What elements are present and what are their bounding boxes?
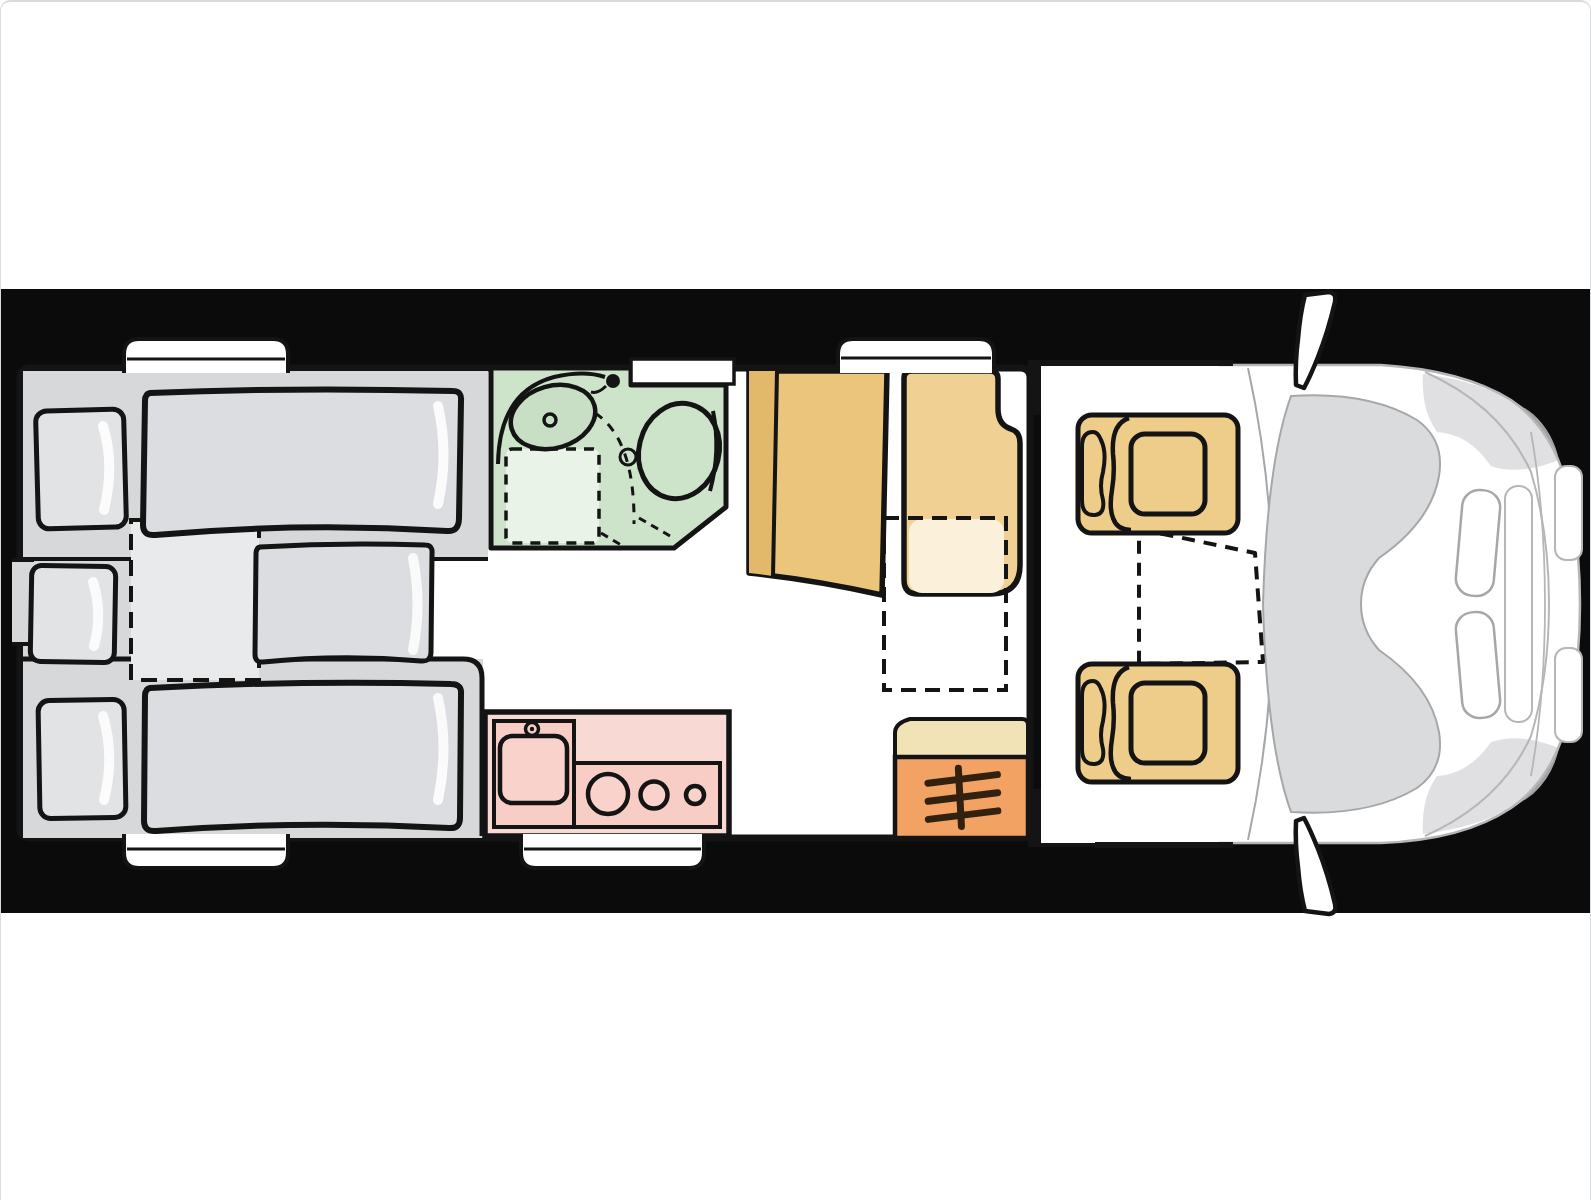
- passenger-swivel-seat: [1078, 664, 1238, 782]
- sink-basin: [500, 736, 567, 803]
- window-kitchen-bottom: [521, 834, 704, 868]
- mattress-middle: [255, 544, 432, 662]
- shower-tray-dashed: [506, 449, 599, 543]
- mattress-top: [143, 389, 461, 535]
- driver-swivel-seat: [1078, 415, 1238, 533]
- shower-head-icon: [606, 374, 620, 388]
- dinette-table-folded: [909, 519, 1004, 593]
- heater-top-panel: [895, 719, 1028, 757]
- headlight-top: [1454, 489, 1501, 598]
- seat-cushion: [1131, 434, 1205, 514]
- floorplan-canvas: [1, 2, 1591, 1200]
- window-bedroom-bottom: [124, 834, 288, 868]
- headrest: [1082, 432, 1105, 515]
- seat-cushion: [1131, 683, 1205, 763]
- bumper-cap-bottom: [1555, 648, 1582, 742]
- bathroom: [491, 359, 734, 548]
- bumper-cap-top: [1555, 466, 1582, 560]
- heater-unit: [895, 719, 1028, 838]
- floorplan-page: [0, 0, 1591, 1200]
- window-bathroom-top: [631, 359, 734, 384]
- bed-extension-dashed: [131, 520, 259, 680]
- headlight-bottom: [1454, 611, 1501, 720]
- rear-bedroom: [12, 371, 488, 838]
- faucet-icon: [526, 723, 539, 736]
- wall-joint-top: [1028, 360, 1041, 415]
- window-dinette-top: [838, 339, 994, 373]
- kitchen: [485, 712, 729, 836]
- window-bedroom-top: [124, 339, 288, 373]
- mattress-bottom: [144, 683, 461, 831]
- headrest: [1082, 681, 1105, 764]
